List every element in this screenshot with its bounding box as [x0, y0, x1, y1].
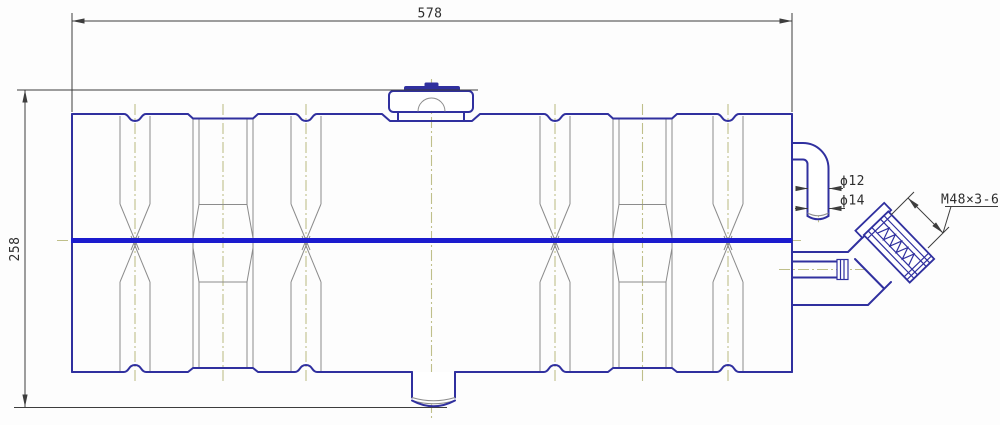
drawing-canvas: 578 258 ϕ12 ϕ14 M48×3-6g: [0, 0, 1000, 425]
filler-cap-body: [389, 91, 473, 112]
dimension-dia-large: ϕ14: [795, 194, 865, 209]
dia-small-label: ϕ12: [840, 174, 865, 189]
centerlines: [57, 79, 867, 418]
breather-pipe: [793, 143, 829, 219]
tank-drawing: 578 258 ϕ12 ϕ14 M48×3-6g: [0, 0, 1000, 425]
thread-label: M48×3-6g: [941, 193, 1000, 208]
filler-cap: [389, 83, 473, 122]
filler-cap-tab: [425, 83, 439, 88]
dia-large-label: ϕ14: [840, 194, 865, 209]
length-label: 578: [418, 7, 443, 22]
height-label: 258: [8, 237, 23, 262]
drain-port: [412, 372, 455, 406]
dimension-height: 258: [8, 90, 478, 407]
